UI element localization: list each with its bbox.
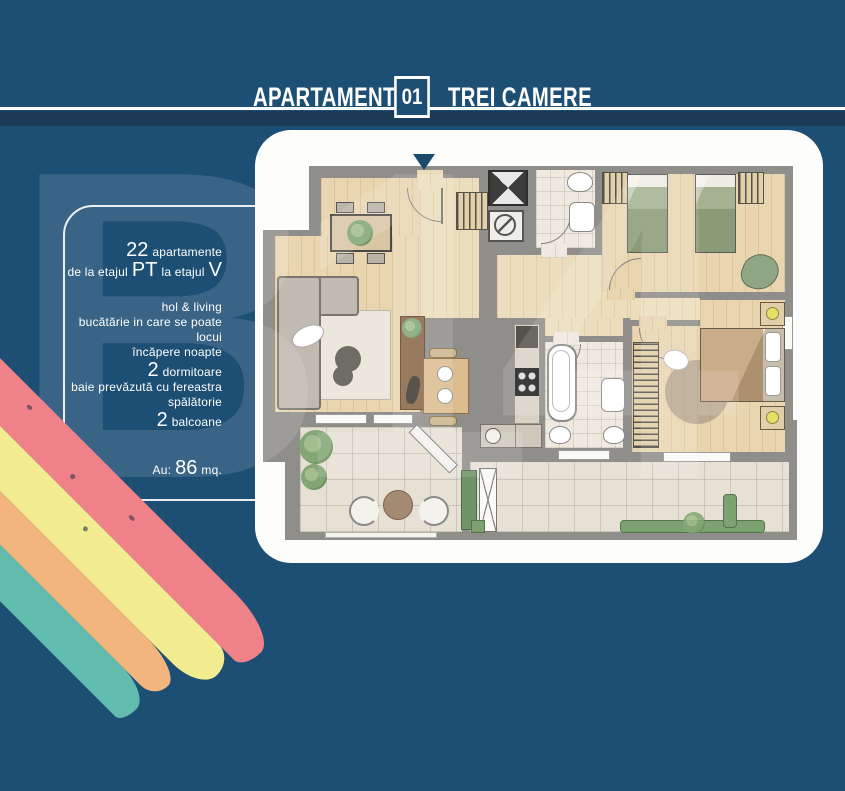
feature-laundry: spălătorie xyxy=(58,395,222,410)
boiler-unit xyxy=(488,170,528,206)
console-plant xyxy=(402,318,422,338)
brush-fleck xyxy=(128,514,136,522)
bathroom2-opening xyxy=(541,244,567,258)
single-bed-2 xyxy=(695,174,736,253)
bathroom-window xyxy=(558,450,610,460)
living-window-2 xyxy=(373,414,413,424)
hall-cabinet xyxy=(456,192,488,230)
sink-2 xyxy=(569,202,595,232)
kitchen-chair xyxy=(429,416,457,426)
terrace-table xyxy=(383,490,413,520)
brush-fleck xyxy=(82,525,89,532)
brochure-page: { "header": { "title": "APARTAMENT", "nu… xyxy=(0,0,845,598)
plan-notch xyxy=(263,166,309,230)
toilet-1 xyxy=(549,426,571,444)
feature-kitchen: bucătărie in care se poate locui xyxy=(58,315,222,345)
brush-fleck xyxy=(26,404,33,411)
terrace-chair-1 xyxy=(349,496,379,526)
terrace-plant-2 xyxy=(301,464,327,490)
coffee-table-2 xyxy=(333,366,353,386)
apartment-number-badge: 01 xyxy=(394,76,430,118)
page-subtitle: TREI CAMERE xyxy=(448,81,592,113)
plate xyxy=(437,366,453,382)
dining-chair xyxy=(367,202,385,213)
toilet-2 xyxy=(567,172,593,192)
table-plant xyxy=(347,220,373,246)
living-window-1 xyxy=(315,414,367,424)
wardrobe-1 xyxy=(602,172,628,204)
feature-bath: baie prevăzută cu fereastra xyxy=(58,380,222,395)
feature-night: încăpere noapte xyxy=(58,345,222,360)
feature-bedrooms: 2dormitoare xyxy=(58,360,222,380)
kitchen-chair xyxy=(429,348,457,358)
apartment-info: 22apartamente de la etajulPTla etajulV h… xyxy=(58,240,222,478)
page-title: APARTAMENT xyxy=(253,81,396,113)
lamp-1 xyxy=(766,307,779,320)
lamp-2 xyxy=(766,411,779,424)
info-line-floors: de la etajulPTla etajulV xyxy=(58,260,222,280)
entrance-opening xyxy=(417,170,443,190)
plate xyxy=(437,388,453,404)
stove xyxy=(515,368,539,396)
pillow xyxy=(765,332,781,362)
kitchen-sink xyxy=(485,428,501,444)
terrace-rail xyxy=(325,532,437,538)
hedge-small xyxy=(471,520,485,533)
bidet xyxy=(603,426,625,444)
terrace-sprig xyxy=(683,512,705,534)
entrance-door-leaf xyxy=(441,188,443,224)
wardrobe-2 xyxy=(738,172,764,204)
floorplan-card xyxy=(255,130,823,563)
entrance-arrow-icon xyxy=(413,154,435,170)
master-wardrobe xyxy=(633,342,659,448)
master-window xyxy=(663,452,731,462)
single-bed-1 xyxy=(627,174,668,253)
terrace-plant-1 xyxy=(299,430,333,464)
feature-living: hol & living xyxy=(58,300,222,315)
terrace-chair-2 xyxy=(419,496,449,526)
bathtub-inner xyxy=(552,350,570,412)
kitchen-sink-block xyxy=(516,326,538,348)
info-line-count: 22apartamente xyxy=(58,240,222,260)
washer-drum xyxy=(494,214,516,236)
hedge-vertical xyxy=(723,494,737,528)
pillow xyxy=(765,366,781,396)
dining-chair xyxy=(336,253,354,264)
dining-chair xyxy=(367,253,385,264)
dining-chair xyxy=(336,202,354,213)
area-line: Au:86mq. xyxy=(58,458,222,478)
feature-balconies: 2balcoane xyxy=(58,410,222,430)
sink-1 xyxy=(601,378,625,412)
